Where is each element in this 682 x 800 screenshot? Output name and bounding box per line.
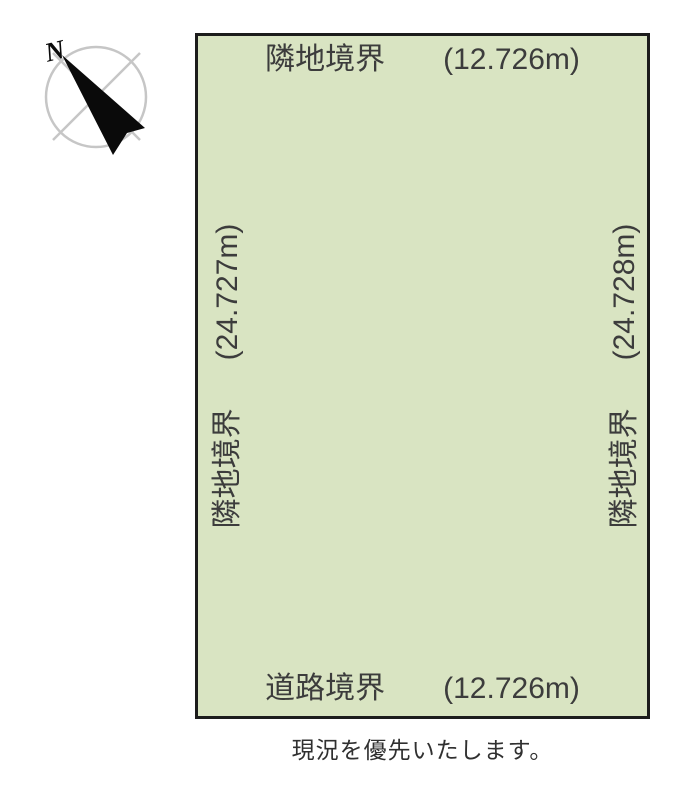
boundary-top-name: 隣地境界 (265, 43, 385, 78)
boundary-label-top: 隣地境界 (12.726m) (198, 43, 647, 78)
site-plan-diagram: N 隣地境界 (12.726m) 隣地境界 (24.727m) 隣地境界 (24… (0, 0, 682, 800)
north-label: N (41, 34, 70, 68)
boundary-bottom-length: (12.726m) (443, 672, 580, 707)
boundary-top-length: (12.726m) (443, 43, 580, 78)
footnote-text: 現況を優先いたします。 (195, 731, 650, 765)
boundary-right-name: 隣地境界 (608, 408, 643, 528)
boundary-right-length: (24.728m) (608, 224, 643, 361)
boundary-label-bottom: 道路境界 (12.726m) (198, 672, 647, 707)
boundary-left-name: 隣地境界 (211, 408, 246, 528)
north-arrow-pointer (62, 55, 145, 155)
boundary-left-length: (24.727m) (211, 224, 246, 361)
north-arrow-icon: N (26, 27, 166, 167)
boundary-label-right: 隣地境界 (24.728m) (608, 224, 643, 529)
boundary-label-left: 隣地境界 (24.727m) (211, 224, 246, 529)
land-parcel: 隣地境界 (12.726m) 隣地境界 (24.727m) 隣地境界 (24.7… (195, 33, 650, 719)
boundary-bottom-name: 道路境界 (265, 672, 385, 707)
